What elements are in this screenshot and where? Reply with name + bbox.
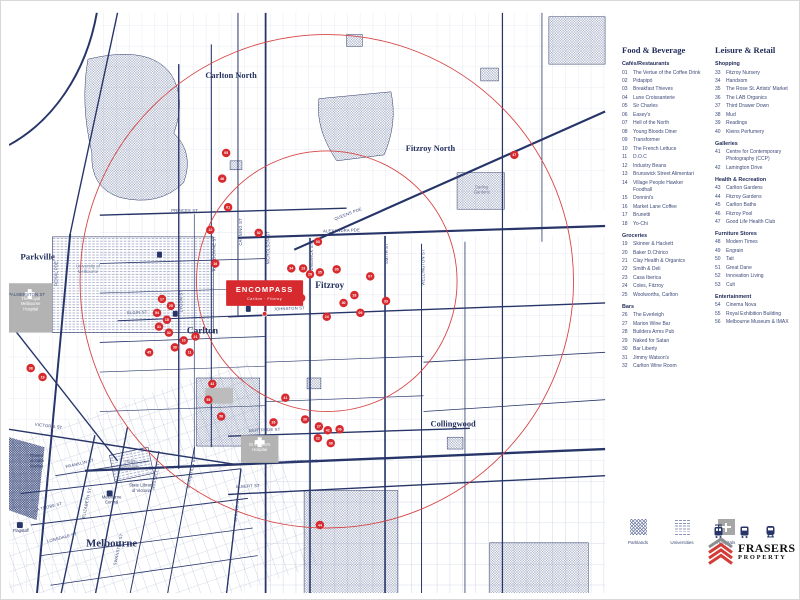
amenity-marker-number: 26 [272,421,276,425]
legend-item-label: Baker D.Chirico [633,250,702,257]
legend-item: 36The LAB Organics [715,95,800,102]
transport-icons [713,524,776,538]
legend-item-label: Cult [726,282,800,289]
street-label: ALEXANDRA PDE [323,227,360,233]
legend-item-number: 10 [622,146,633,153]
legend-item-label: Royal Exhibition Building [726,311,800,318]
legend-item-label: Yo-Chi [633,221,702,228]
amenity-marker-number: 33 [384,299,388,303]
legend-item: 50Tait [715,256,800,263]
legend-item-number: 37 [715,103,726,110]
legend-item-label: Brunswick Street Alimentari [633,171,702,178]
legend-item-number: 02 [622,78,633,85]
legend-item-label: The Everleigh [633,312,702,319]
legend-item-label: Hell of the North [633,120,702,127]
legend-item-number: 18 [622,221,633,228]
amenity-marker-number: 27 [317,425,321,429]
legend-item-label: Breakfast Thieves [633,86,702,93]
place-label: DarlingGardens [474,184,490,194]
legend-item: 11D.O.C [622,154,702,161]
legend-item: 47Good Life Health Club [715,219,800,226]
legend-item-number: 51 [715,265,726,272]
legend-item-number: 39 [715,120,726,127]
legend-item-number: 12 [622,163,633,170]
legend-item-number: 46 [715,211,726,218]
legend-item-label: Woolworths, Carlton [633,292,702,299]
key-item-universities: Universities [666,519,698,545]
legend-item: 54Cinema Nova [715,302,800,309]
amenity-marker-number: 44 [318,523,322,527]
legend-item-label: Tait [726,256,800,263]
legend-item-number: 21 [622,258,633,265]
street-label: WELLINGTON ST [420,249,425,285]
legend-item-number: 41 [715,149,726,163]
amenity-marker-number: 38 [29,366,33,370]
amenity-marker-number: 19 [41,375,45,379]
legend-item: 31Jimmy Watson's [622,355,702,362]
legend-item: 32Carlton Wine Room [622,363,702,370]
legend-item: 18Yo-Chi [622,221,702,228]
amenity-marker-number: 41 [283,396,287,400]
legend-item: 33Fitzroy Nursery [715,70,800,77]
legend-item-number: 33 [715,70,726,77]
legend-item: 02Pidapipó [622,78,702,85]
legend-item: 42Lamington Drive [715,165,800,172]
place-label: The RoyalMelbourneHospital [21,296,41,311]
legend-item: 12Industry Beans [622,163,702,170]
legend-item: 34Handsom [715,78,800,85]
legend-item-label: Melbourne Museum & IMAX [726,319,800,326]
amenity-marker-number: 46 [220,177,224,181]
legend-item: 25Woolworths, Carlton [622,292,702,299]
legend-item-label: The Vertue of the Coffee Drink [633,70,702,77]
legend-item: 26The Everleigh [622,312,702,319]
legend-item-label: Great Dane [726,265,800,272]
place-label: QueenVictoriaMarket [29,453,44,469]
legend-item: 08Young Bloods Diner [622,129,702,136]
legend-item-label: Village People Hawker Foodhall [633,180,702,194]
amenity-marker-number: 47 [512,153,516,157]
legend-item-label: Clay Health & Organics [633,258,702,265]
street-label: NICHOLSON ST [266,231,271,265]
legend-item-label: Cinema Nova [726,302,800,309]
legend-item-number: 04 [622,95,633,102]
legend-item-label: Lune Croissanterie [633,95,702,102]
amenity-marker-number: 06 [338,428,342,432]
legend-item-label: Industry Beans [633,163,702,170]
legend-item-number: 40 [715,129,726,136]
amenity-marker-number: 20 [303,418,307,422]
legend-item: 05Sir Charles [622,103,702,110]
legend-item-label: Coles, Fitzroy [633,283,702,290]
amenity-marker-number: 05 [224,151,228,155]
legend-section-heading: Shopping [715,61,800,67]
suburb-label: Fitzroy North [406,144,456,153]
legend-item: 45Carlton Baths [715,202,800,209]
amenity-marker-number: 11 [188,351,192,355]
legend-item-number: 01 [622,70,633,77]
amenity-marker-number: 22 [316,436,320,440]
legend-item-label: Sir Charles [633,103,702,110]
legend-item-number: 15 [622,195,633,202]
legend-item-label: Bar Liberty [633,346,702,353]
legend-item-label: Fitzroy Pool [726,211,800,218]
legend-item-label: Jimmy Watson's [633,355,702,362]
legend-item-number: 48 [715,239,726,246]
logo-line2: PROPERTY [738,555,795,561]
legend-section-heading: Bars [622,304,702,310]
suburb-label: Fitzroy [315,281,344,291]
legend-item: 21Clay Health & Organics [622,258,702,265]
legend-item-number: 28 [622,329,633,336]
amenity-marker-number: 12 [208,228,212,232]
legend-item-number: 43 [715,185,726,192]
logo-line1: FRASERS [738,542,795,554]
amenity-marker-number: 35 [318,271,322,275]
amenity-marker-number: 01 [226,206,230,210]
legend-section-heading: Groceries [622,233,702,239]
legend-item: 37Third Drawer Down [715,103,800,110]
amenity-marker-number: 21 [194,335,198,339]
legend-section-heading: Health & Recreation [715,177,800,183]
legend-item-label: Innovation Living [726,273,800,280]
amenity-marker-number: 31 [157,325,161,329]
amenity-marker-number: 56 [219,415,223,419]
legend-column: Leisure & RetailShopping33Fitzroy Nurser… [715,45,800,372]
amenity-marker-number: 45 [147,351,151,355]
legend-item-label: Pidapipó [633,78,702,85]
legend-item-number: 34 [715,78,726,85]
street-label: PALMERSTON ST [9,292,46,297]
legend-item-number: 20 [622,250,633,257]
legend-item-number: 23 [622,275,633,282]
train-icon [765,524,776,538]
legend-item: 35The Rose St. Artists' Market [715,86,800,93]
street-label: PRINCES ST [171,208,198,213]
melbourne-amenity-map: University ofMelbourneThe RoyalMelbourne… [9,9,613,593]
amenity-marker-number: 36 [335,268,339,272]
legend-item: 24Coles, Fitzroy [622,283,702,290]
legend-item-label: Skinner & Hackett [633,241,702,248]
legend-item: 03Breakfast Thieves [622,86,702,93]
key-label: Parklands [622,540,654,545]
amenity-marker-number: 42 [326,429,330,433]
legend-item-label: Easey's [633,112,702,119]
tram-icon [713,524,724,538]
legend-item: 30Bar Liberty [622,346,702,353]
amenity-marker-number: 07 [368,275,372,279]
legend-item: 49Engrain [715,248,800,255]
amenity-marker-number: 29 [308,273,312,277]
legend-columns: Food & BeverageCafés/Restaurants01The Ve… [622,45,800,372]
legend-item-number: 35 [715,86,726,93]
amenity-marker-number: 03 [316,240,320,244]
legend-item: 46Fitzroy Pool [715,211,800,218]
legend-item: 41Centre for Contemporary Photography (C… [715,149,800,163]
legend-item-label: Naked for Satan [633,338,702,345]
legend-item-label: Kleins Perfumery [726,129,800,136]
legend-item-number: 13 [622,171,633,178]
legend-item-number: 19 [622,241,633,248]
amenity-marker-number: 25 [169,304,173,308]
legend-item: 52Innovation Living [715,273,800,280]
legend-item: 44Fitzroy Gardens [715,194,800,201]
amenity-marker-number: 28 [352,293,356,297]
amenity-marker-number: 24 [325,315,329,319]
legend-item: 20Baker D.Chirico [622,250,702,257]
amenity-marker-number: 43 [210,382,214,386]
legend-item: 55Royal Exhibition Building [715,311,800,318]
legend-item-number: 31 [622,355,633,362]
amenity-marker-number: 30 [342,301,346,305]
legend-item-number: 32 [622,363,633,370]
development-name: ENCOMPASS [236,285,294,294]
amenity-marker-number: 13 [301,267,305,271]
legend-item-number: 53 [715,282,726,289]
legend-item-number: 45 [715,202,726,209]
amenity-marker-number: 34 [289,267,293,271]
legend-column: Food & BeverageCafés/Restaurants01The Ve… [622,45,702,372]
legend-item-number: 17 [622,212,633,219]
legend-item: 06Easey's [622,112,702,119]
suburb-label: Parkville [20,252,55,262]
legend-item-number: 07 [622,120,633,127]
key-item-parklands: Parklands [622,519,654,545]
amenity-marker-number: 55 [206,398,210,402]
legend-section-heading: Entertainment [715,294,800,300]
legend-item-label: Young Bloods Diner [633,129,702,136]
legend-item-label: Fitzroy Gardens [726,194,800,201]
legend-item: 19Skinner & Hackett [622,241,702,248]
parklands-swatch [630,519,647,535]
street-label: CANNING ST [238,218,243,246]
legend-item-label: The LAB Organics [726,95,800,102]
legend-item-number: 56 [715,319,726,326]
place-label: Flagstaff [13,528,30,533]
frasers-logo-mark [706,537,734,567]
frasers-property-logo: FRASERS PROPERTY [706,537,795,567]
bus-icon [739,524,750,538]
legend-item-number: 47 [715,219,726,226]
legend-item-label: Market Lane Coffee [633,204,702,211]
amenity-marker-number: 08 [329,441,333,445]
street-label: ROYAL PDE [53,261,58,286]
legend-item-number: 29 [622,338,633,345]
amenity-marker-number: 02 [257,231,261,235]
legend-item: 15Donnini's [622,195,702,202]
legend-item-label: D.O.C [633,154,702,161]
legend-section-heading: Cafés/Restaurants [622,61,702,67]
legend-item-label: Modern Times [726,239,800,246]
legend-item-number: 09 [622,137,633,144]
amenity-marker-number: 39 [173,346,177,350]
universities-swatch [674,519,691,535]
legend-item-number: 06 [622,112,633,119]
legend-item: 51Great Dane [715,265,800,272]
legend-item-label: Mud [726,112,800,119]
legend-item-number: 38 [715,112,726,119]
legend-item-label: Carlton Wine Room [633,363,702,370]
legend-item-label: Engrain [726,248,800,255]
legend-item-label: Handsom [726,78,800,85]
legend-item-number: 05 [622,103,633,110]
development-subtitle: Carlton · Fitzroy [247,297,282,301]
legend-item: 40Kleins Perfumery [715,129,800,136]
legend-item-label: Casa Iberica [633,275,702,282]
legend-item: 10The French Lettuce [622,146,702,153]
legend-item-number: 25 [622,292,633,299]
legend-item: 17Brunetti [622,212,702,219]
amenity-marker-number: 54 [155,311,159,315]
amenity-marker-number: 32 [167,331,171,335]
legend-item-number: 54 [715,302,726,309]
legend-item: 22Smith & Deli [622,266,702,273]
legend-item: 27Marion Wine Bar [622,321,702,328]
key-label: Universities [666,540,698,545]
suburb-label: Carlton North [205,71,257,80]
street-label: SMITH ST [384,243,389,264]
legend-item-label: Smith & Deli [633,266,702,273]
brochure-map-page: University ofMelbourneThe RoyalMelbourne… [0,0,800,600]
legend-item-label: Readings [726,120,800,127]
legend-item: 29Naked for Satan [622,338,702,345]
street-label: LYGON ST [179,290,184,312]
amenity-marker-number: 10 [182,339,186,343]
development-pin [262,311,267,316]
legend-item-label: Carlton Baths [726,202,800,209]
legend-item-number: 27 [622,321,633,328]
legend-column-title: Food & Beverage [622,45,702,55]
legend-item: 48Modern Times [715,239,800,246]
legend-item-label: The French Lettuce [633,146,702,153]
legend-item-number: 14 [622,180,633,194]
amenity-marker-number: 17 [160,297,164,301]
amenity-marker-number: 16 [213,262,217,266]
legend-item-number: 36 [715,95,726,102]
legend-item-label: The Rose St. Artists' Market [726,86,800,93]
amenity-marker-number: 15 [165,318,169,322]
legend-item-number: 52 [715,273,726,280]
legend-item: 07Hell of the North [622,120,702,127]
legend-section-heading: Furniture Stores [715,231,800,237]
legend-item: 16Market Lane Coffee [622,204,702,211]
legend-item-number: 22 [622,266,633,273]
legend-item-label: Fitzroy Nursery [726,70,800,77]
amenity-marker-number: 09 [358,311,362,315]
legend-item-number: 55 [715,311,726,318]
legend-item: 23Casa Iberica [622,275,702,282]
legend-item: 38Mud [715,112,800,119]
legend-item-label: Centre for Contemporary Photography (CCP… [726,149,800,163]
place-label: University ofMelbourne [76,263,101,273]
legend-item-label: Lamington Drive [726,165,800,172]
street-label: ELGIN ST [127,309,148,315]
legend-item: 28Builders Arms Pub [622,329,702,336]
legend-item-number: 08 [622,129,633,136]
legend-item: 13Brunswick Street Alimentari [622,171,702,178]
legend-item: 04Lune Croissanterie [622,95,702,102]
legend-item-number: 26 [622,312,633,319]
legend-item-number: 42 [715,165,726,172]
legend-item-number: 11 [622,154,633,161]
legend-item-label: Third Drawer Down [726,103,800,110]
legend-item: 09Transformer [622,137,702,144]
legend-item-number: 44 [715,194,726,201]
legend-item-label: Marion Wine Bar [633,321,702,328]
legend-item: 39Readings [715,120,800,127]
legend-item-label: Transformer [633,137,702,144]
legend-column-title: Leisure & Retail [715,45,800,55]
legend-item: 14Village People Hawker Foodhall [622,180,702,194]
legend-item: 56Melbourne Museum & IMAX [715,319,800,326]
legend-item-number: 30 [622,346,633,353]
legend-item-number: 03 [622,86,633,93]
legend-item-label: Carlton Gardens [726,185,800,192]
legend-item-number: 49 [715,248,726,255]
legend-item-label: Donnini's [633,195,702,202]
legend-item-number: 24 [622,283,633,290]
legend-item: 43Carlton Gardens [715,185,800,192]
legend-item-number: 50 [715,256,726,263]
legend-item-label: Builders Arms Pub [633,329,702,336]
legend-section-heading: Galleries [715,141,800,147]
legend-item: 01The Vertue of the Coffee Drink [622,70,702,77]
suburb-label: Melbourne [86,538,137,550]
legend-item-number: 16 [622,204,633,211]
legend-item-label: Brunetti [633,212,702,219]
legend-item: 53Cult [715,282,800,289]
suburb-label: Collingwood [431,419,476,428]
legend-item-label: Good Life Health Club [726,219,800,226]
